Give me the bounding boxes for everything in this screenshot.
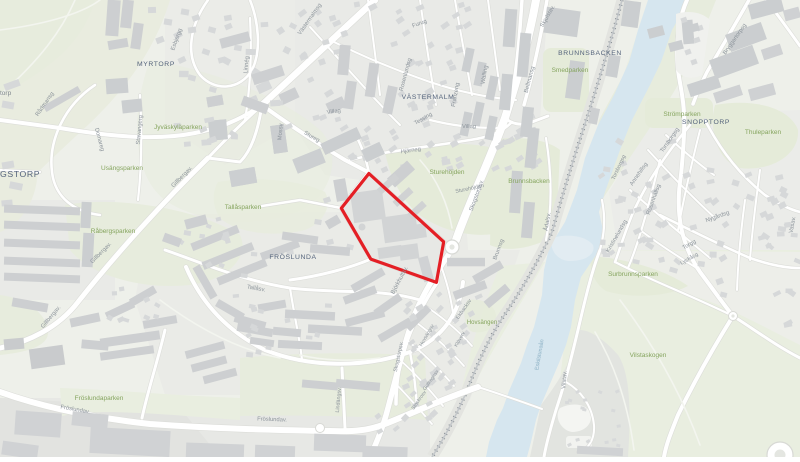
svg-text:Jyväskyläparken: Jyväskyläparken [154,124,202,131]
svg-text:Fröslundaparken: Fröslundaparken [75,395,124,402]
svg-text:BRUNNSBACKEN: BRUNNSBACKEN [558,50,622,57]
svg-text:Surbrunnsparken: Surbrunnsparken [608,271,658,278]
svg-text:Villag: Villag [462,124,476,130]
svg-text:FRÖSLUNDA: FRÖSLUNDA [269,253,316,261]
svg-text:Sturehöjden: Sturehöjden [429,169,464,176]
svg-text:Strömparken: Strömparken [663,111,701,118]
svg-text:Brunnsbacken: Brunnsbacken [508,178,550,185]
svg-text:torp: torp [0,90,12,97]
svg-text:Fröslundav.: Fröslundav. [257,416,287,423]
svg-text:Vilstaskogen: Vilstaskogen [630,352,667,359]
svg-text:Smedparken: Smedparken [552,67,589,74]
svg-text:Usängsparken: Usängsparken [101,165,143,172]
svg-text:MYRTORP: MYRTORP [137,61,175,68]
svg-text:VÄSTERMALM: VÄSTERMALM [402,93,455,101]
svg-text:Hovsängen: Hovsängen [467,320,497,326]
svg-text:Råbergsparken: Råbergsparken [91,227,136,235]
svg-text:GSTORP: GSTORP [0,169,40,179]
svg-text:Thuleparken: Thuleparken [745,129,782,136]
svg-text:SNOPPTORP: SNOPPTORP [682,119,730,126]
svg-text:Tallåsparken: Tallåsparken [225,203,262,211]
